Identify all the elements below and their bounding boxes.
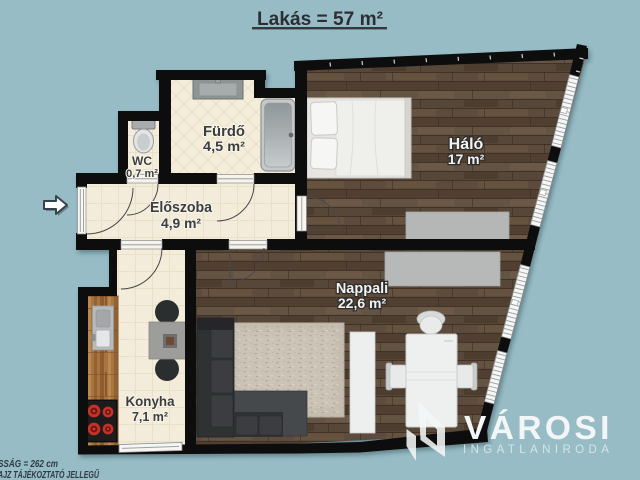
svg-text:4,9 m²: 4,9 m² [161, 215, 201, 231]
svg-text:Lakás = 57 m²: Lakás = 57 m² [257, 9, 383, 30]
svg-text:Konyha: Konyha [126, 393, 175, 409]
svg-text:22,6 m²: 22,6 m² [338, 295, 387, 311]
svg-text:VÁROSI: VÁROSI [464, 409, 613, 447]
svg-text:4,5 m²: 4,5 m² [203, 138, 245, 154]
svg-text:17 m²: 17 m² [448, 151, 485, 167]
svg-text:INGATLANIRODA: INGATLANIRODA [463, 444, 613, 456]
svg-text:WC: WC [132, 154, 152, 168]
svg-text:SSÁG = 262 cm: SSÁG = 262 cm [0, 457, 58, 470]
svg-text:7,1 m²: 7,1 m² [132, 410, 168, 424]
svg-text:Előszoba: Előszoba [150, 199, 213, 216]
svg-text:AJZ TÁJÉKOZTATÓ JELLEGŰ: AJZ TÁJÉKOZTATÓ JELLEGŰ [0, 468, 100, 480]
svg-text:0,7 m²: 0,7 m² [126, 168, 158, 180]
